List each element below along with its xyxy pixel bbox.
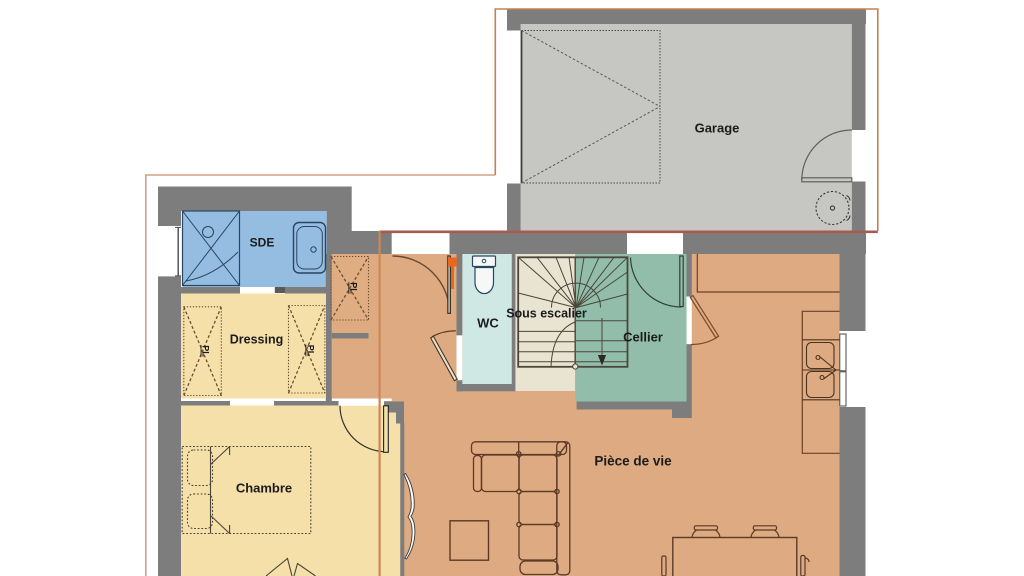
svg-text:SDE: SDE (250, 236, 275, 250)
svg-text:PL: PL (348, 282, 358, 294)
svg-text:WC: WC (477, 316, 499, 331)
svg-text:Chambre: Chambre (236, 481, 292, 496)
svg-text:Garage: Garage (695, 121, 740, 136)
svg-text:Pièce de vie: Pièce de vie (594, 454, 672, 469)
svg-text:PL: PL (305, 345, 315, 357)
svg-text:Cellier: Cellier (623, 330, 663, 345)
svg-text:Sous escalier: Sous escalier (506, 307, 587, 321)
svg-text:PL: PL (201, 345, 211, 357)
svg-text:Dressing: Dressing (230, 333, 284, 347)
